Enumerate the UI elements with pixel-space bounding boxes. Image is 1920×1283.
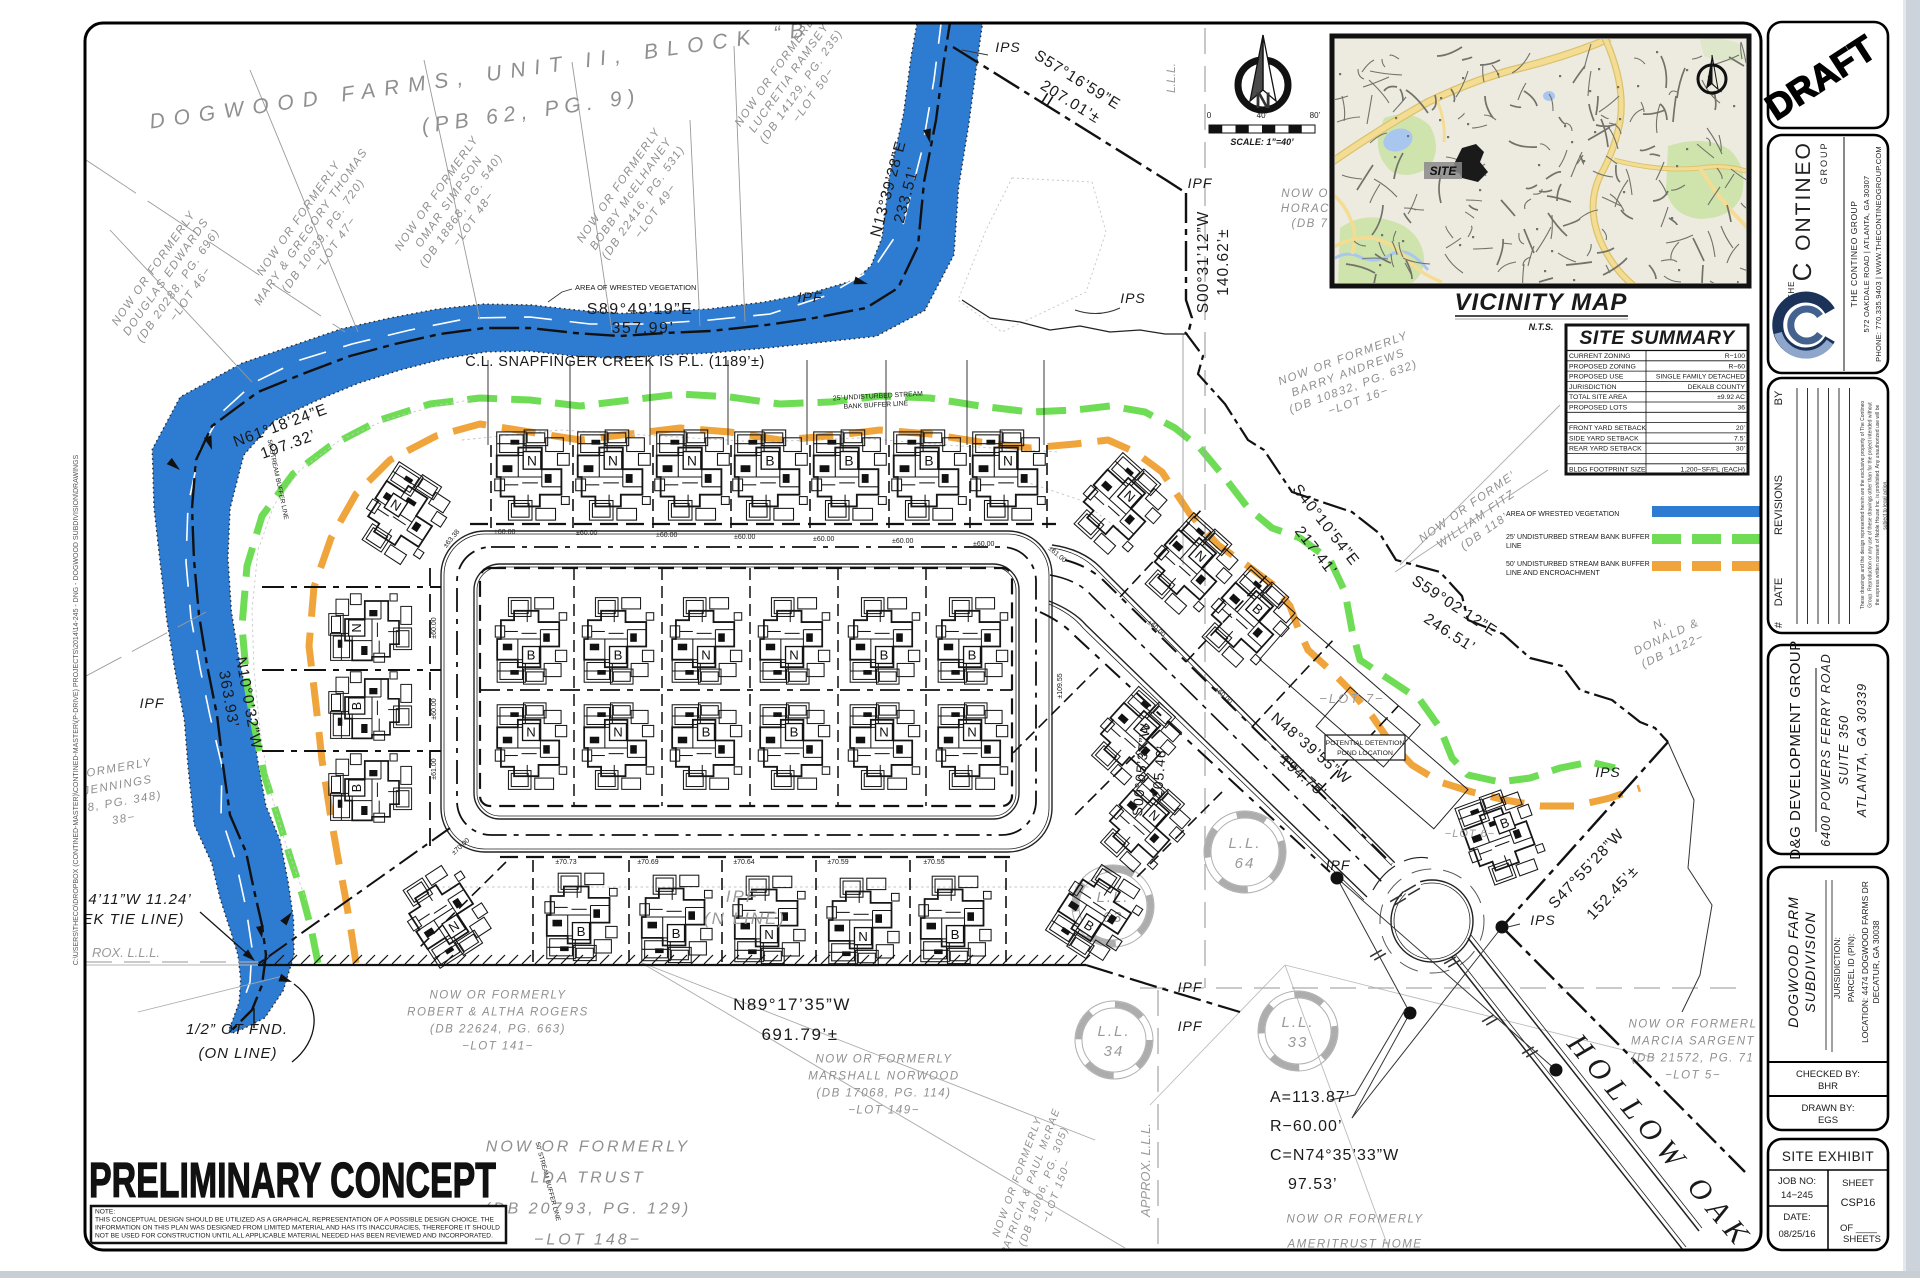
svg-text:R−60: R−60 [1729, 363, 1746, 370]
svg-text:APPROX. L.L.L.: APPROX. L.L.L. [1138, 1123, 1153, 1218]
svg-text:DOGWOOD FARM: DOGWOOD FARM [1785, 896, 1801, 1028]
svg-text:(DB 22624, PG. 663): (DB 22624, PG. 663) [430, 1024, 566, 1036]
svg-text:N: N [967, 725, 977, 740]
svg-text:N89°17’35”W: N89°17’35”W [733, 995, 851, 1014]
svg-text:LINE AND ENCROACHMENT: LINE AND ENCROACHMENT [1506, 570, 1600, 577]
svg-text:B: B [844, 453, 853, 468]
svg-text:ROBERT & ALTHA ROGERS: ROBERT & ALTHA ROGERS [407, 1007, 589, 1019]
svg-text:DATE:: DATE: [1783, 1212, 1810, 1223]
svg-text:IPS: IPS [1530, 912, 1556, 928]
svg-text:CSP16: CSP16 [1841, 1197, 1876, 1209]
svg-text:(ON LINE): (ON LINE) [198, 1045, 277, 1062]
svg-text:−LOT 149−: −LOT 149− [848, 1105, 920, 1117]
svg-text:PROPOSED ZONING: PROPOSED ZONING [1569, 363, 1636, 370]
svg-text:SINGLE FAMILY DETACHED: SINGLE FAMILY DETACHED [1656, 374, 1745, 381]
svg-text:LOCATION: 4474 DOGWOOD FARMS D: LOCATION: 4474 DOGWOOD FARMS DR [1860, 881, 1870, 1043]
svg-text:B: B [702, 725, 711, 740]
svg-text:±70.73: ±70.73 [555, 859, 576, 866]
svg-text:SUITE 350: SUITE 350 [1837, 715, 1851, 785]
svg-text:0: 0 [1207, 111, 1212, 120]
svg-text:08/25/16: 08/25/16 [1779, 1229, 1816, 1240]
svg-text:NOTE:: NOTE: [95, 1209, 115, 1216]
svg-text:64: 64 [1235, 855, 1256, 872]
svg-text:(DB 7: (DB 7 [1292, 218, 1329, 230]
svg-text:±60.00: ±60.00 [431, 617, 438, 638]
svg-text:N: N [1255, 88, 1271, 113]
svg-text:DATE: DATE [1773, 578, 1785, 607]
svg-text:INFORMATION ON THIS PLAN WAS D: INFORMATION ON THIS PLAN WAS DESIGNED FR… [95, 1225, 500, 1232]
svg-text:B: B [951, 927, 960, 942]
svg-text:CURRENT ZONING: CURRENT ZONING [1569, 353, 1630, 360]
svg-text:NOW OR FORMERLY: NOW OR FORMERLY [486, 1139, 690, 1156]
svg-text:40’: 40’ [1257, 111, 1268, 120]
svg-text:357.99’: 357.99’ [612, 320, 675, 337]
svg-text:(DB 20793, PG. 129): (DB 20793, PG. 129) [485, 1201, 691, 1218]
svg-text:L.L.: L.L. [1228, 835, 1261, 852]
svg-text:TOTAL SITE AREA: TOTAL SITE AREA [1569, 394, 1628, 401]
svg-text:C:\USERS\THECO\DROPBOX (CONTIN: C:\USERS\THECO\DROPBOX (CONTINED-MASTER)… [73, 454, 80, 965]
svg-text:SUBDIVISION: SUBDIVISION [1802, 911, 1818, 1012]
svg-text:B: B [350, 784, 364, 792]
svg-text:IPF: IPF [1188, 175, 1213, 191]
svg-text:REVISIONS: REVISIONS [1773, 475, 1785, 535]
svg-text:IPS: IPS [995, 39, 1021, 55]
svg-text:N: N [764, 927, 774, 942]
svg-text:B: B [765, 453, 774, 468]
svg-text:ROX. L.L.L.: ROX. L.L.L. [92, 945, 160, 960]
svg-text:N: N [526, 725, 536, 740]
svg-text:IPF: IPF [140, 695, 165, 711]
svg-text:±70.69: ±70.69 [637, 859, 658, 866]
svg-text:CHECKED BY:: CHECKED BY: [1796, 1069, 1860, 1080]
svg-text:1,200−SF/FL (EACH): 1,200−SF/FL (EACH) [1680, 466, 1745, 473]
svg-text:NOW OR FORMERLY: NOW OR FORMERLY [815, 1054, 952, 1066]
svg-text:DRAWN BY:: DRAWN BY: [1802, 1103, 1855, 1114]
svg-text:−LOT 6−: −LOT 6− [1445, 828, 1495, 840]
svg-text:AREA OF WRESTED VEGETATION: AREA OF WRESTED VEGETATION [575, 283, 696, 292]
svg-text:6400 POWERS FERRY ROAD: 6400 POWERS FERRY ROAD [1819, 653, 1833, 847]
svg-text:SITE: SITE [1430, 164, 1458, 178]
svg-text:JURISDICTION: JURISDICTION [1569, 384, 1617, 391]
svg-text:691.79’±: 691.79’± [761, 1025, 838, 1044]
svg-text:BLDG FOOTPRINT SIZE: BLDG FOOTPRINT SIZE [1569, 466, 1646, 473]
svg-text:PROPOSED LOTS: PROPOSED LOTS [1569, 405, 1628, 412]
svg-text:B: B [880, 648, 889, 663]
svg-text:NOT BE USED FOR CONSTRUCTION U: NOT BE USED FOR CONSTRUCTION UNTIL ALL A… [95, 1233, 493, 1240]
svg-text:±60.00: ±60.00 [656, 532, 677, 539]
svg-text:±70.55: ±70.55 [923, 859, 944, 866]
svg-text:(DB 17068, PG. 114): (DB 17068, PG. 114) [816, 1088, 951, 1100]
svg-text:MARSHALL NORWOOD: MARSHALL NORWOOD [808, 1071, 959, 1083]
svg-text:N.T.S.: N.T.S. [1529, 322, 1554, 332]
svg-text:−LOT 148−: −LOT 148− [534, 1232, 642, 1249]
svg-text:IPF: IPF [726, 887, 758, 906]
svg-text:REAR YARD SETBACK: REAR YARD SETBACK [1569, 446, 1642, 453]
svg-text:IPF: IPF [1178, 979, 1203, 995]
svg-text:±60.00: ±60.00 [734, 534, 755, 541]
svg-text:±60.00: ±60.00 [892, 538, 913, 545]
svg-text:R−100: R−100 [1725, 353, 1745, 360]
svg-text:ONTINEO: ONTINEO [1792, 141, 1815, 251]
svg-text:GROUP: GROUP [1819, 141, 1829, 184]
svg-text:L.L.: L.L. [1281, 1014, 1314, 1031]
svg-text:JURSIDICTION:: JURSIDICTION: [1832, 937, 1842, 999]
svg-text:EGS: EGS [1818, 1115, 1838, 1126]
svg-text:±70.59: ±70.59 [827, 859, 848, 866]
svg-text:33: 33 [1288, 1034, 1309, 1051]
svg-text:14−245: 14−245 [1781, 1190, 1813, 1201]
svg-text:N: N [613, 725, 623, 740]
svg-text:4’11”W 11.24’: 4’11”W 11.24’ [88, 891, 191, 908]
svg-text:34: 34 [1104, 1043, 1125, 1060]
svg-text:L.L.L.: L.L.L. [1164, 63, 1178, 93]
svg-text:N: N [527, 453, 537, 468]
svg-text:20’: 20’ [1736, 425, 1746, 432]
svg-text:D&G DEVELOPMENT GROUP: D&G DEVELOPMENT GROUP [1787, 640, 1804, 859]
svg-text:N: N [858, 929, 868, 944]
svg-text:±9.92 AC: ±9.92 AC [1717, 394, 1745, 401]
svg-text:S00°31’12”W: S00°31’12”W [1195, 211, 1212, 314]
svg-text:N: N [789, 648, 799, 663]
svg-text:EEK TIE LINE): EEK TIE LINE) [71, 911, 184, 928]
svg-text:SIDE YARD SETBACK: SIDE YARD SETBACK [1569, 435, 1639, 442]
svg-text:B: B [350, 702, 364, 710]
svg-text:IPF: IPF [798, 289, 823, 305]
svg-text:B: B [924, 453, 933, 468]
svg-text:the express written consent of: the express written consent of Noble Hou… [1875, 404, 1881, 605]
svg-text:Group. Reproduction or any us: Group. Reproduction or any use of these … [1868, 402, 1874, 608]
svg-text:B: B [577, 924, 586, 939]
svg-text:−LOT 7−: −LOT 7− [1319, 691, 1384, 706]
svg-text:1/2” OT FND.: 1/2” OT FND. [186, 1021, 288, 1038]
svg-text:SHEET: SHEET [1842, 1178, 1874, 1189]
svg-text:A=113.87’: A=113.87’ [1270, 1089, 1350, 1106]
svg-text:L.L.: L.L. [1097, 1023, 1130, 1040]
svg-text:±70.64: ±70.64 [733, 859, 754, 866]
svg-text:±60.00: ±60.00 [576, 530, 597, 537]
svg-text:50’ UNDISTURBED STREAM BANK BU: 50’ UNDISTURBED STREAM BANK BUFFER [1506, 561, 1650, 568]
svg-text:#: # [1773, 621, 1785, 628]
svg-text:ATLANTA, GA 30339: ATLANTA, GA 30339 [1855, 683, 1869, 818]
svg-text:PRELIMINARY CONCEPT: PRELIMINARY CONCEPT [89, 1154, 496, 1208]
svg-text:IPS: IPS [1595, 764, 1621, 780]
svg-text:PHONE: 770.335.9403 | WWW.THEC: PHONE: 770.335.9403 | WWW.THECONTINEOGRO… [1874, 146, 1883, 362]
svg-text:IPF: IPF [1178, 1018, 1203, 1034]
svg-text:These drawings and the design: These drawings and the design represente… [1860, 401, 1866, 610]
svg-text:N: N [687, 453, 697, 468]
svg-text:OF ____: OF ____ [1840, 1223, 1878, 1234]
svg-text:subject to legal action.: subject to legal action. [1883, 480, 1889, 529]
svg-text:C=N74°35’33”W: C=N74°35’33”W [1270, 1147, 1399, 1164]
svg-text:DEKALB COUNTY: DEKALB COUNTY [1688, 384, 1746, 391]
svg-text:N: N [879, 725, 889, 740]
svg-text:MARCIA SARGENT: MARCIA SARGENT [1631, 1036, 1755, 1048]
svg-text:±60.00: ±60.00 [813, 536, 834, 543]
svg-text:N: N [701, 648, 711, 663]
svg-text:SITE EXHIBIT: SITE EXHIBIT [1782, 1149, 1874, 1164]
svg-text:AREA OF WRESTED VEGETATION: AREA OF WRESTED VEGETATION [1506, 511, 1619, 518]
svg-text:POTENTIAL DETENTION: POTENTIAL DETENTION [1326, 740, 1405, 747]
svg-text:25’ UNDISTURBED STREAM BANK BU: 25’ UNDISTURBED STREAM BANK BUFFER [1506, 534, 1650, 541]
svg-text:C: C [1787, 263, 1817, 282]
svg-text:IPF: IPF [1326, 857, 1351, 873]
svg-text:±60.00: ±60.00 [973, 541, 994, 548]
svg-text:(N LINE): (N LINE) [704, 909, 786, 928]
svg-text:30’: 30’ [1736, 446, 1746, 453]
svg-text:B: B [672, 926, 681, 941]
svg-text:BHR: BHR [1818, 1081, 1838, 1092]
svg-text:80’: 80’ [1310, 111, 1321, 120]
svg-text:NOW OR FORMERLY: NOW OR FORMERLY [429, 990, 566, 1002]
svg-text:N: N [608, 453, 618, 468]
svg-text:L.L.: L.L. [1096, 889, 1129, 906]
svg-text:PROPOSED USE: PROPOSED USE [1569, 374, 1624, 381]
svg-text:THE CONTINEO GROUP: THE CONTINEO GROUP [1849, 201, 1859, 308]
svg-text:B: B [968, 648, 977, 663]
svg-text:SHEETS: SHEETS [1843, 1234, 1881, 1245]
svg-text:140.62’±: 140.62’± [1215, 228, 1232, 295]
svg-text:±60.00: ±60.00 [431, 698, 438, 719]
svg-text:36: 36 [1737, 405, 1745, 412]
svg-text:R−60.00’: R−60.00’ [1270, 1118, 1343, 1135]
svg-text:VICINITY MAP: VICINITY MAP [1455, 289, 1628, 316]
svg-text:C.L. SNAPFINGER CREEK IS P: C.L. SNAPFINGER CREEK IS P.L. (1189’±) [465, 354, 765, 370]
svg-text:B: B [614, 648, 623, 663]
svg-text:IPS: IPS [1120, 290, 1146, 306]
svg-text:97.53’: 97.53’ [1288, 1176, 1338, 1193]
svg-text:−LOT 5−: −LOT 5− [1665, 1070, 1721, 1082]
svg-text:LINE: LINE [1506, 543, 1522, 550]
svg-text:N: N [350, 623, 364, 632]
svg-text:B: B [527, 648, 536, 663]
svg-text:BY: BY [1773, 390, 1785, 405]
svg-text:FRONT YARD SETBACK: FRONT YARD SETBACK [1569, 425, 1647, 432]
svg-text:S89°49’19”E: S89°49’19”E [587, 301, 694, 318]
svg-text:NOW OR FORMERL: NOW OR FORMERL [1629, 1019, 1758, 1031]
svg-text:DECATUR, GA 30038: DECATUR, GA 30038 [1871, 920, 1881, 1003]
svg-text:±60.00: ±60.00 [494, 529, 515, 536]
svg-text:B: B [790, 725, 799, 740]
svg-text:JOB NO:: JOB NO: [1778, 1176, 1816, 1187]
svg-text:SCALE: 1”=40’: SCALE: 1”=40’ [1230, 137, 1294, 147]
svg-text:±61.00: ±61.00 [431, 758, 438, 779]
svg-text:NOW OR FORMERLY: NOW OR FORMERLY [1286, 1214, 1423, 1226]
svg-text:7.5’: 7.5’ [1734, 435, 1745, 442]
svg-text:SITE SUMMARY: SITE SUMMARY [1579, 327, 1736, 349]
svg-text:THIS CONCEPTUAL DESIGN SHOULD: THIS CONCEPTUAL DESIGN SHOULD BE UTILIZE… [95, 1217, 494, 1224]
svg-text:N: N [1003, 453, 1013, 468]
svg-text:LDA TRUST: LDA TRUST [530, 1170, 645, 1187]
svg-text:572 OAKDALE ROAD | ATLANTA, GA: 572 OAKDALE ROAD | ATLANTA, GA 30307 [1862, 176, 1871, 333]
svg-text:−LOT 141−: −LOT 141− [462, 1041, 534, 1053]
svg-text:PARCEL ID (PIN):: PARCEL ID (PIN): [1846, 934, 1856, 1002]
svg-text:±109.55: ±109.55 [1057, 673, 1064, 698]
svg-text:(DB 21572, PG. 71: (DB 21572, PG. 71 [1632, 1053, 1755, 1065]
